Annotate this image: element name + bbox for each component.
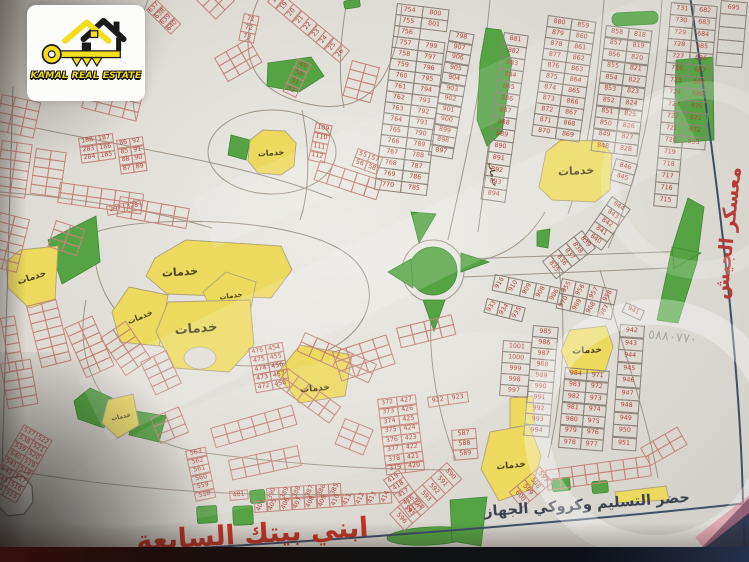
logo-brand-text: KAMAL REAL ESTATE [27,71,145,81]
delivery-note: حضر التسليم وكروكي الجهاز [484,490,691,520]
key-house-icon [40,10,132,70]
right-margin-label: معسكر الجيش [706,122,749,343]
services-label: خدمات [174,320,218,339]
services-label: خدمات [572,345,602,357]
map-photo: 7547557567577587597607617627637647657667… [0,0,749,562]
services-label: خدمات [161,264,198,279]
services-strip-label: خدمات [481,139,504,209]
services-label: خدمات [16,269,47,288]
services-label: خدمات [300,383,330,396]
services-label: خدمات [126,308,154,326]
kamal-logo: KAMAL REAL ESTATE [27,5,145,101]
services-label: خدمات [258,148,285,159]
watermark-digits: ٥٨٨٠٧٧٠ [647,327,697,347]
services-label: خدمات [558,164,595,179]
photo-bottom-edge [0,547,749,562]
services-label: خدمات [496,459,527,472]
services-label: خدمات [111,412,132,423]
services-label: خدمات [219,290,243,301]
